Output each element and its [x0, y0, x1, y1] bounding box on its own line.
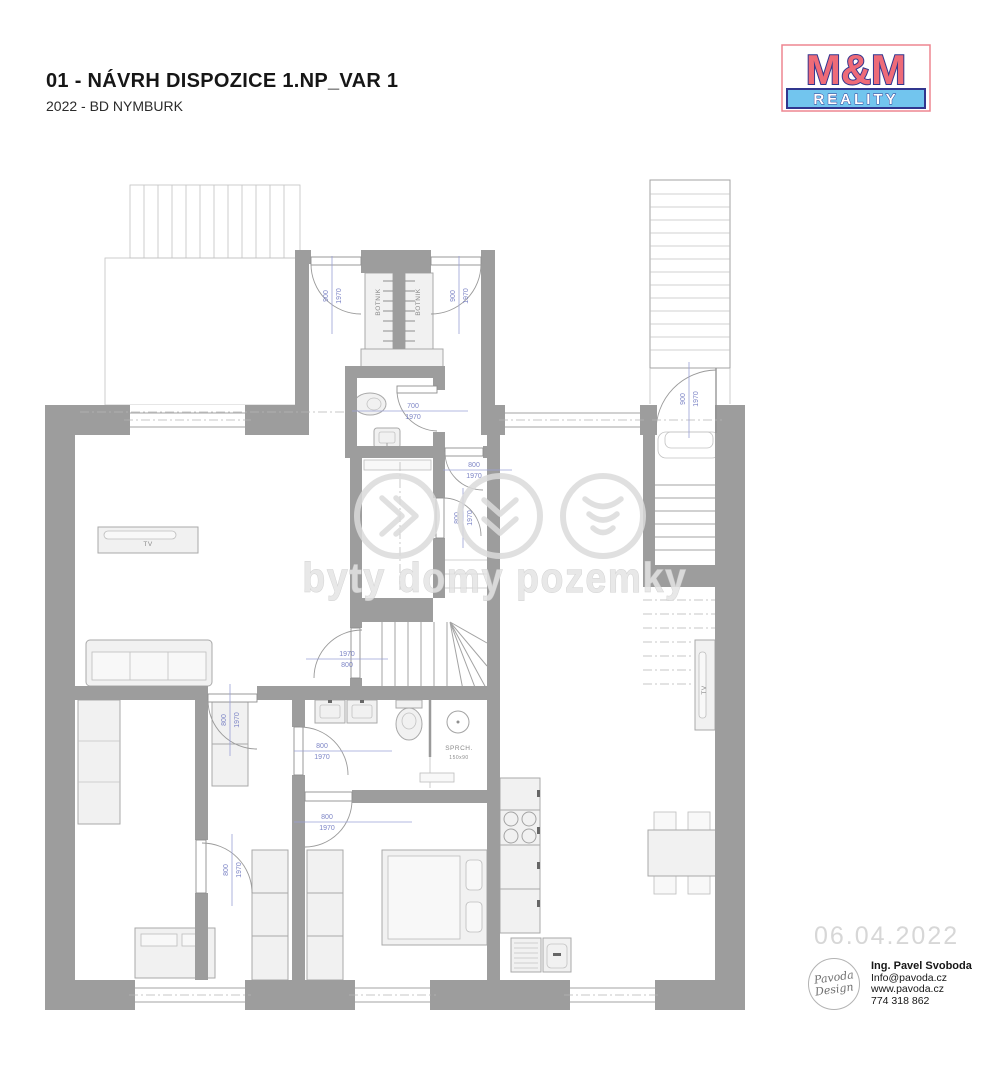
stamp-line2: Design	[814, 981, 854, 998]
logo-mm-text: M&M	[806, 46, 906, 93]
dim-room-left-h: 1970	[234, 712, 241, 728]
shower-size-label: 150x90	[449, 755, 468, 761]
dim-entry-right-h: 1970	[463, 288, 470, 304]
logo-reality-text: REALITY	[813, 91, 898, 108]
designer-contact: Ing. Pavel Svoboda Info@pavoda.cz www.pa…	[871, 961, 972, 1007]
shower-label: SPRCH.	[445, 745, 473, 752]
furniture	[78, 273, 720, 980]
page-subtitle: 2022 - BD NYMBURK	[46, 98, 398, 114]
window-bottom-left	[129, 980, 251, 1010]
dim-entry-left-w: 900	[323, 290, 330, 302]
dim-bath-w: 800	[316, 743, 328, 750]
dim-bedroom-w: 800	[321, 814, 333, 821]
tv-living-label: TV	[143, 541, 152, 548]
page-title: 01 - NÁVRH DISPOZICE 1.NP_VAR 1	[46, 70, 398, 93]
dim-entry-right-w: 900	[450, 290, 457, 302]
window-bottom-mid	[349, 980, 436, 1010]
botnik-left-label: BOTNIK	[375, 288, 382, 315]
pavoda-design-stamp: Pavoda Design	[808, 958, 860, 1010]
designer-name: Ing. Pavel Svoboda	[871, 961, 972, 973]
plan-date: 06.04.2022	[814, 922, 959, 951]
mm-reality-logo: M&M REALITY	[781, 44, 931, 117]
page: 900 1970 900 1970 700 1970 800 1970 800 …	[0, 0, 984, 1080]
window-top-left	[124, 405, 251, 435]
dim-stairs-h: 800	[341, 662, 353, 669]
tv-right-label: TV	[701, 685, 708, 694]
dim-stairs-w: 1970	[339, 651, 355, 658]
window-top-right	[499, 405, 646, 435]
floor-plan: 900 1970 900 1970 700 1970 800 1970 800 …	[0, 0, 984, 1080]
dim-entry-left-h: 1970	[336, 288, 343, 304]
watermark-text: byty domy pozemky	[303, 554, 688, 601]
dim-hall-top-w: 800	[468, 462, 480, 469]
dim-entrance-h: 1970	[693, 391, 700, 407]
dim-bath-h: 1970	[314, 754, 330, 761]
dim-wc-h: 1970	[405, 414, 421, 421]
dim-hall-side-h: 1970	[467, 510, 474, 526]
botnik-right-label: BOTNIK	[415, 288, 422, 315]
dim-wc-w: 700	[407, 403, 419, 410]
dim-closet-h: 1970	[236, 862, 243, 878]
dim-closet-w: 800	[223, 864, 230, 876]
designer-phone: 774 318 862	[871, 996, 972, 1008]
designer-web: www.pavoda.cz	[871, 984, 972, 996]
terrace	[105, 185, 300, 405]
dim-bedroom-h: 1970	[319, 825, 335, 832]
title-block: 01 - NÁVRH DISPOZICE 1.NP_VAR 1 2022 - B…	[46, 70, 398, 114]
dim-entrance-w: 900	[680, 393, 687, 405]
dim-room-left-w: 800	[221, 714, 228, 726]
window-bottom-right	[564, 980, 661, 1010]
